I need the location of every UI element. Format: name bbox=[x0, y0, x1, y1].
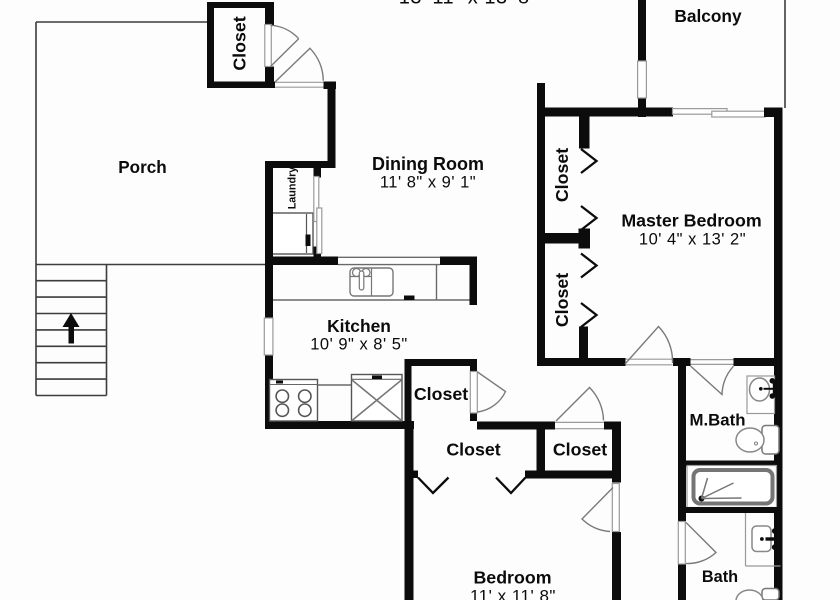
svg-text:Master Bedroom: Master Bedroom bbox=[621, 211, 761, 231]
svg-text:Closet: Closet bbox=[230, 16, 250, 70]
svg-text:Bath: Bath bbox=[702, 568, 738, 586]
svg-text:11' x 11' 8": 11' x 11' 8" bbox=[470, 587, 556, 600]
svg-text:Dining Room: Dining Room bbox=[372, 154, 484, 174]
svg-text:Laundry: Laundry bbox=[286, 167, 298, 210]
svg-text:11' 8" x 9' 1": 11' 8" x 9' 1" bbox=[380, 174, 476, 192]
svg-text:13' 11" x 13' 8": 13' 11" x 13' 8" bbox=[399, 0, 537, 9]
svg-text:Closet: Closet bbox=[552, 273, 572, 327]
svg-text:M.Bath: M.Bath bbox=[690, 411, 746, 430]
svg-text:Bedroom: Bedroom bbox=[473, 568, 551, 588]
svg-text:Closet: Closet bbox=[553, 440, 607, 460]
svg-text:10' 4" x 13' 2": 10' 4" x 13' 2" bbox=[639, 231, 746, 249]
svg-text:Closet: Closet bbox=[414, 384, 468, 404]
svg-text:Porch: Porch bbox=[118, 158, 166, 177]
svg-text:Closet: Closet bbox=[552, 148, 572, 202]
svg-text:Closet: Closet bbox=[446, 440, 500, 460]
svg-text:Kitchen: Kitchen bbox=[327, 316, 391, 336]
svg-text:10' 9" x 8' 5": 10' 9" x 8' 5" bbox=[310, 336, 407, 354]
svg-text:Balcony: Balcony bbox=[674, 6, 742, 26]
